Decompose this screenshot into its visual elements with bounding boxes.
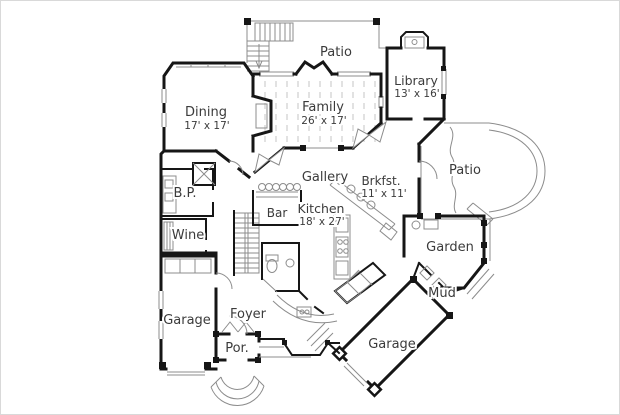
room-label-brkfst: Brkfst. <box>361 174 400 188</box>
room-labels: Patio Library 13' x 16' Dining 17' x 17'… <box>163 45 481 356</box>
room-label-patio-side: Patio <box>449 163 481 178</box>
french-door-left <box>255 148 284 172</box>
room-label-gallery: Gallery <box>302 170 349 185</box>
floor-plan-drawing: Patio Library 13' x 16' Dining 17' x 17'… <box>1 1 619 414</box>
room-label-garden: Garden <box>426 240 474 255</box>
rear-patio-deck <box>244 18 387 71</box>
walkway-and-bay <box>259 339 339 357</box>
room-dims-brkfst: 11' x 11' <box>361 188 406 200</box>
room-label-garage-left: Garage <box>163 313 211 328</box>
room-label-kitchen: Kitchen <box>298 201 345 216</box>
side-patio <box>421 123 545 225</box>
garden-planter <box>412 221 420 229</box>
room-label-wine: Wine <box>172 228 204 243</box>
storage-strip <box>335 263 385 303</box>
room-label-porch: Por. <box>225 341 249 356</box>
room-label-bar: Bar <box>267 206 288 220</box>
room-label-bp: B.P. <box>174 186 197 201</box>
sink <box>286 259 294 267</box>
room-dims-dining: 17' x 17' <box>184 120 229 132</box>
back-steps <box>307 323 333 351</box>
room-label-dining: Dining <box>185 105 227 120</box>
room-label-library: Library <box>394 73 438 88</box>
room-label-foyer: Foyer <box>230 307 267 322</box>
powder-room <box>262 243 323 313</box>
fireplace <box>253 76 271 151</box>
garage-door <box>344 363 367 386</box>
breakfast-room <box>419 119 444 216</box>
rear-garage <box>307 263 453 396</box>
washer <box>420 266 434 280</box>
planter-diagonal <box>467 203 493 225</box>
french-door-right <box>353 122 386 148</box>
room-label-mud: Mud <box>428 286 456 301</box>
powder-door <box>263 279 277 292</box>
room-label-garage-rear: Garage <box>368 337 416 352</box>
front-porch <box>211 316 264 405</box>
garage-door-swing <box>216 273 232 289</box>
room-label-family: Family <box>302 100 344 115</box>
patio-door-swing <box>419 161 437 179</box>
room-dims-kitchen: 18' x 27' <box>299 216 344 228</box>
porch-gables <box>222 322 254 332</box>
main-staircase <box>234 211 259 275</box>
floor-plan-page: Patio Library 13' x 16' Dining 17' x 17'… <box>0 0 620 415</box>
room-label-patio-rear: Patio <box>320 45 352 60</box>
garage-storage <box>165 259 211 273</box>
room-dims-library: 13' x 16' <box>394 88 439 100</box>
room-dims-family: 26' x 17' <box>301 115 346 127</box>
kitchen-sink-cab <box>336 261 348 275</box>
